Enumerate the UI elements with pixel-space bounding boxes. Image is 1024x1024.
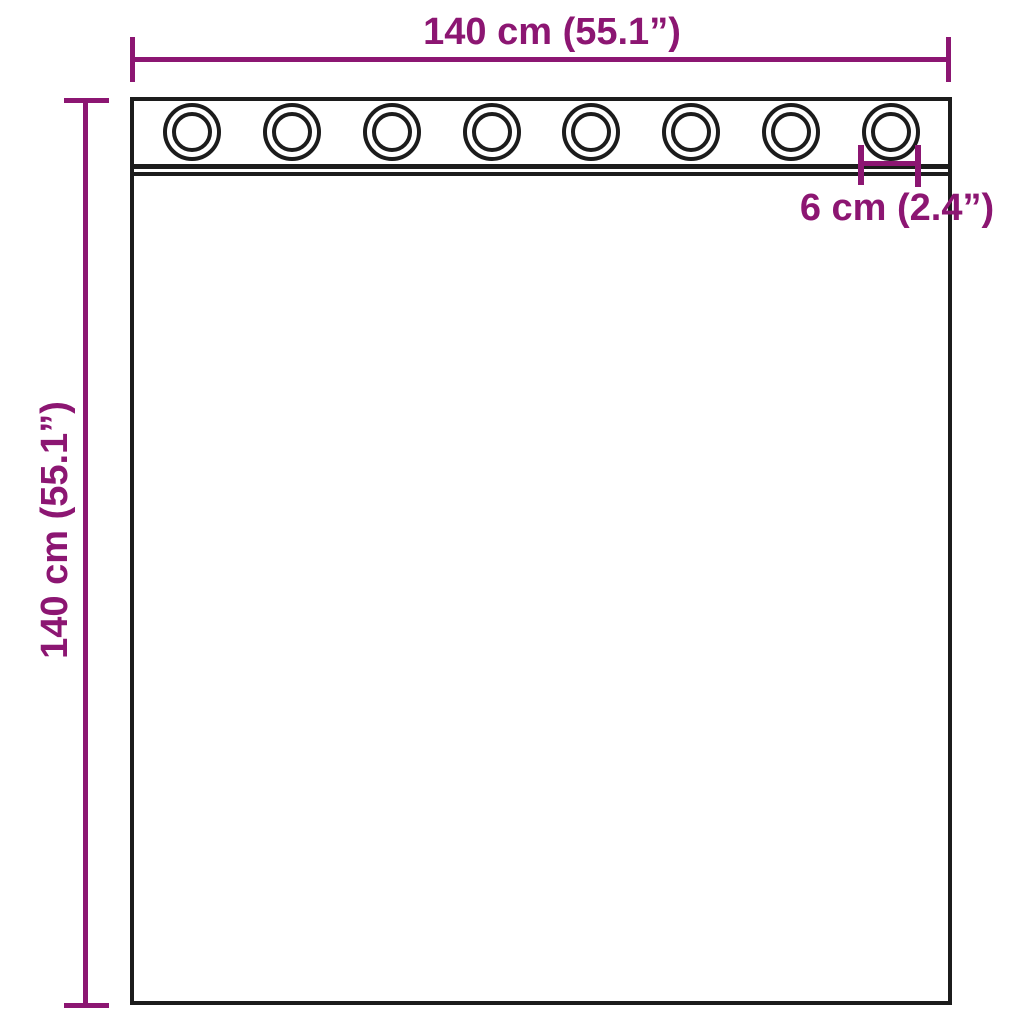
grommet-inner-ring bbox=[671, 112, 711, 152]
grommet-eyelet bbox=[163, 103, 221, 161]
height-dimension-label: 140 cm (55.1”) bbox=[36, 401, 74, 659]
grommet-inner-ring bbox=[272, 112, 312, 152]
grommet-eyelet bbox=[762, 103, 820, 161]
grommet-inner-ring bbox=[472, 112, 512, 152]
grommet-band-stitch-line bbox=[134, 172, 948, 176]
curtain-panel bbox=[130, 97, 952, 1005]
width-dimension-label: 140 cm (55.1”) bbox=[423, 13, 681, 51]
height-dimension-line bbox=[83, 98, 88, 1008]
grommet-eyelet bbox=[263, 103, 321, 161]
grommet-eyelet bbox=[363, 103, 421, 161]
grommet-spacing-label: 6 cm (2.4”) bbox=[800, 189, 994, 227]
height-dimension-tick-top bbox=[64, 98, 109, 103]
grommet-band-separator-line bbox=[134, 164, 948, 169]
grommet-eyelet bbox=[662, 103, 720, 161]
grommet-row bbox=[163, 103, 920, 161]
grommet-inner-ring bbox=[871, 112, 911, 152]
width-dimension-tick-left bbox=[130, 37, 135, 82]
grommet-inner-ring bbox=[372, 112, 412, 152]
height-dimension-tick-bottom bbox=[64, 1003, 109, 1008]
grommet-eyelet bbox=[463, 103, 521, 161]
width-dimension-tick-right bbox=[946, 37, 951, 82]
grommet-inner-ring bbox=[571, 112, 611, 152]
grommet-eyelet bbox=[862, 103, 920, 161]
spacing-dimension-line bbox=[858, 161, 921, 166]
spacing-dimension-tick-right bbox=[915, 145, 921, 187]
grommet-inner-ring bbox=[771, 112, 811, 152]
grommet-inner-ring bbox=[172, 112, 212, 152]
grommet-eyelet bbox=[562, 103, 620, 161]
width-dimension-line bbox=[130, 57, 951, 62]
product-dimension-diagram: 140 cm (55.1”) 140 cm (55.1”) 6 cm (2.4”… bbox=[0, 0, 1024, 1024]
